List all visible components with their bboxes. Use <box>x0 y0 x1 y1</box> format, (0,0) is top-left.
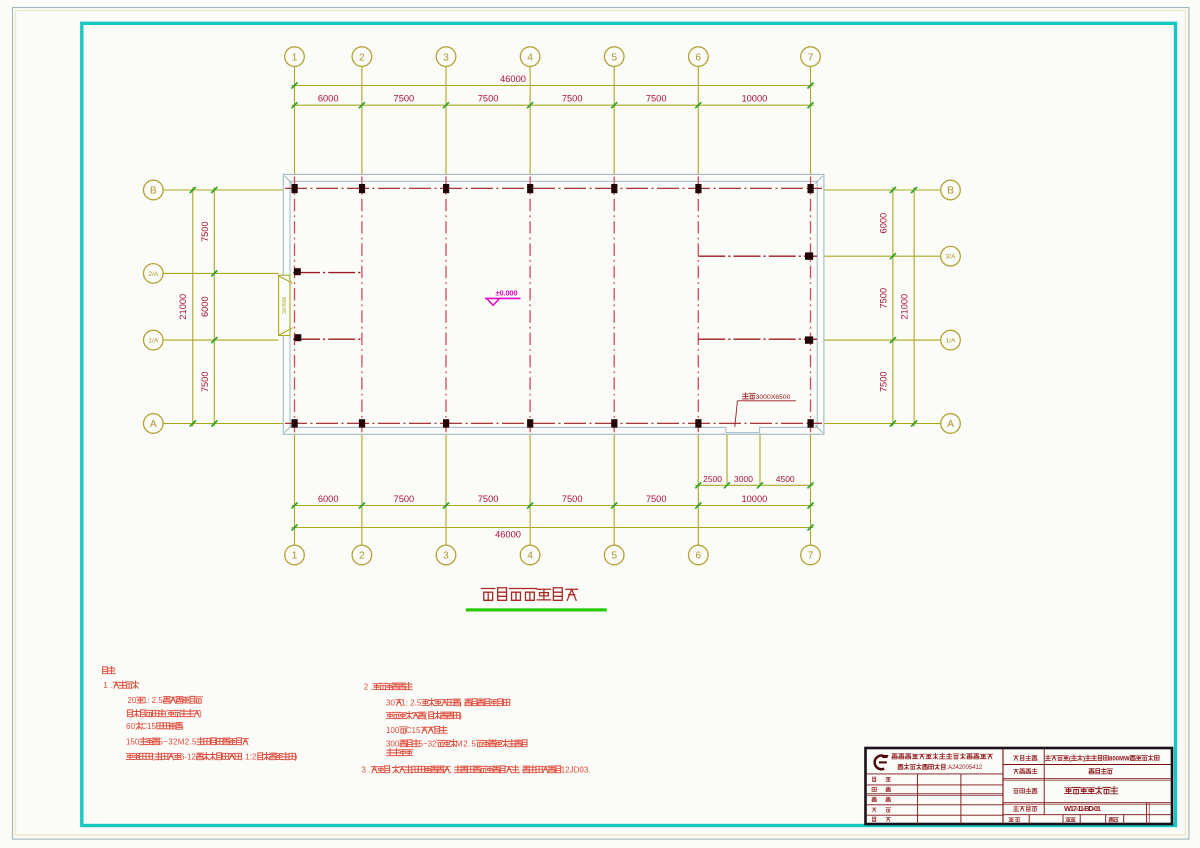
svg-text:): ) <box>295 753 298 762</box>
svg-text:2: 2 <box>359 52 365 63</box>
svg-text:7500: 7500 <box>646 494 667 504</box>
svg-text:300: 300 <box>386 740 400 749</box>
svg-text:3.: 3. <box>362 766 371 775</box>
svg-text:21000: 21000 <box>900 294 910 320</box>
svg-text:7500: 7500 <box>478 494 499 504</box>
svg-text:7500: 7500 <box>200 221 210 242</box>
svg-text:7500: 7500 <box>562 494 583 504</box>
svg-text:6000: 6000 <box>318 94 339 104</box>
svg-text:4: 4 <box>527 52 533 63</box>
svg-text:7: 7 <box>808 551 814 562</box>
svg-text::A242005412: :A242005412 <box>947 765 983 771</box>
svg-text:7500: 7500 <box>646 94 667 104</box>
svg-text:W17-11-BD-01: W17-11-BD-01 <box>1064 804 1101 813</box>
svg-text:2.: 2. <box>364 683 373 692</box>
svg-text:7500: 7500 <box>200 371 210 392</box>
svg-text:2: 2 <box>359 551 365 562</box>
svg-text:46000: 46000 <box>495 530 521 540</box>
svg-text:±0.000: ±0.000 <box>496 289 518 298</box>
svg-text:6-12: 6-12 <box>180 753 197 762</box>
svg-text:(: ( <box>1069 756 1071 762</box>
svg-text:30: 30 <box>386 699 395 708</box>
svg-text:(: ( <box>424 712 427 721</box>
svg-text:7500: 7500 <box>878 288 888 309</box>
svg-text:A: A <box>947 419 954 430</box>
svg-text:1/A: 1/A <box>148 338 159 345</box>
svg-text:): ) <box>199 710 202 719</box>
svg-text:): ) <box>1083 756 1085 762</box>
svg-text:7500: 7500 <box>394 494 415 504</box>
svg-text:5: 5 <box>611 52 617 63</box>
svg-text:6: 6 <box>695 551 701 562</box>
svg-text:150: 150 <box>126 738 140 747</box>
svg-text:A: A <box>150 419 157 430</box>
svg-text:6000: 6000 <box>878 213 888 234</box>
svg-text:7500: 7500 <box>478 94 499 104</box>
svg-text:2/A: 2/A <box>148 271 159 278</box>
svg-text:4: 4 <box>527 551 533 562</box>
svg-text:100: 100 <box>386 726 400 735</box>
svg-text:5: 5 <box>611 551 617 562</box>
svg-text:(: ( <box>152 753 155 762</box>
svg-text:12JD03.: 12JD03. <box>561 766 591 775</box>
svg-text:7500: 7500 <box>562 94 583 104</box>
svg-text:7500: 7500 <box>394 94 415 104</box>
svg-text:B: B <box>150 186 157 197</box>
svg-text:,: , <box>518 766 520 775</box>
svg-text:4500: 4500 <box>776 474 795 484</box>
svg-text:C15: C15 <box>141 722 156 731</box>
svg-text:1: 2.5: 1: 2.5 <box>401 699 422 708</box>
svg-text:3000: 3000 <box>734 474 753 484</box>
svg-text:3000X6500: 3000X6500 <box>756 394 791 401</box>
svg-text:(: ( <box>164 710 167 719</box>
svg-text:7: 7 <box>808 52 814 63</box>
svg-text:10000: 10000 <box>741 494 767 504</box>
svg-text:1: 1 <box>292 551 298 562</box>
svg-text:5~32: 5~32 <box>419 740 438 749</box>
svg-text:46000: 46000 <box>500 74 526 84</box>
svg-text:6000: 6000 <box>200 296 210 317</box>
svg-text:, 1:2: , 1:2 <box>241 753 257 762</box>
svg-text:7500: 7500 <box>878 371 888 392</box>
svg-text:B: B <box>947 186 954 197</box>
svg-text:1/A: 1/A <box>945 338 956 345</box>
svg-text:,: , <box>460 699 462 708</box>
svg-text:): ) <box>459 712 462 721</box>
svg-text:21000: 21000 <box>178 294 188 320</box>
svg-text:20: 20 <box>128 696 137 705</box>
svg-text:10000: 10000 <box>741 94 767 104</box>
svg-text:1: 1 <box>292 52 298 63</box>
svg-text:5~32M2.5: 5~32M2.5 <box>159 738 198 747</box>
svg-text:1: 2.5: 1: 2.5 <box>143 696 164 705</box>
svg-text:C15: C15 <box>406 726 421 735</box>
svg-text:3: 3 <box>443 551 449 562</box>
svg-text:3/A: 3/A <box>945 254 956 261</box>
svg-text:2500: 2500 <box>703 474 722 484</box>
svg-text:1.: 1. <box>103 681 112 690</box>
svg-text:800MW: 800MW <box>1109 756 1130 762</box>
svg-text:6000: 6000 <box>318 494 339 504</box>
svg-text::: : <box>114 667 116 676</box>
svg-text:3: 3 <box>443 52 449 63</box>
svg-text:3X4500: 3X4500 <box>282 296 288 313</box>
svg-text:6: 6 <box>695 52 701 63</box>
svg-text:60: 60 <box>126 722 135 731</box>
svg-text:,: , <box>449 766 451 775</box>
svg-text:M2.5: M2.5 <box>456 740 477 749</box>
